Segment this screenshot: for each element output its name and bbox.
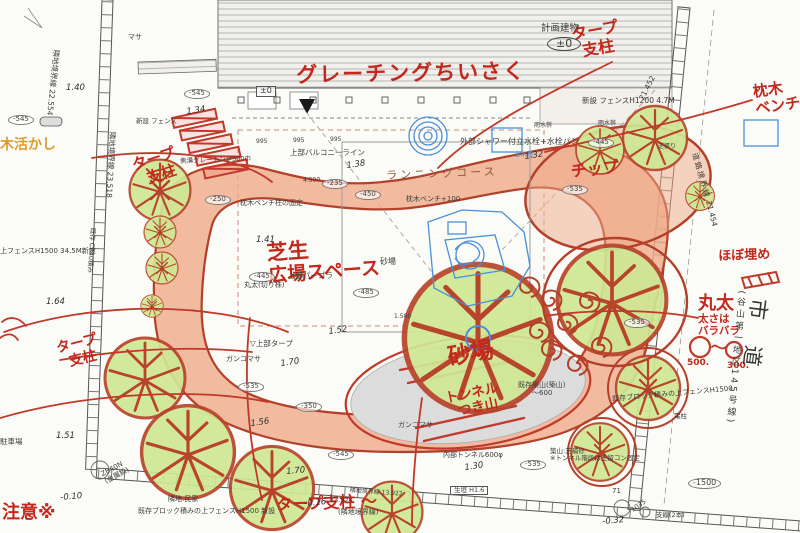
label-masa: マサ xyxy=(128,34,142,42)
pill-minus485: -485 xyxy=(353,288,379,298)
level-minus032: -0.32 xyxy=(602,516,625,527)
dim-995-1: 995 xyxy=(256,139,267,146)
note-caution: 注意※ xyxy=(2,503,56,523)
level-140: 1.40 xyxy=(66,84,85,94)
dim-4500: 4.500 xyxy=(303,177,320,184)
label-rain-basin-2: 雨水桝 xyxy=(598,121,616,128)
pill-minus545a: -545 xyxy=(184,89,210,99)
label-block-fence-bottom: 既存ブロック積みの上フェンスH1500 新設 xyxy=(138,508,275,516)
note-keep-trees: 木活かし xyxy=(0,138,56,154)
label-inner-tunnel: 内部トンネル600φ xyxy=(443,452,503,460)
pill-minus250: -250 xyxy=(205,195,231,205)
site-plan-drawing: グレーチングちいさく タープ支柱 枕木ベンチ タープ支柱 ほぼ埋め 丸太太さはバ… xyxy=(0,0,800,533)
label-upper-fence-h1500: 上フェンスH1500 34.5M新設 xyxy=(0,248,96,256)
level-minus010: -0.10 xyxy=(60,492,83,503)
pill-minus445a: -445 xyxy=(249,272,275,282)
label-rain-basin-1: 雨水桝 xyxy=(534,123,552,130)
pill-minus445b: -445 xyxy=(588,138,614,148)
level-170b: 1.70 xyxy=(286,466,306,477)
label-sandpit-printed: 砂場 xyxy=(380,258,396,267)
pill-minus535c: -535 xyxy=(238,382,264,392)
label-balcony-line: 上部バルコニーライン xyxy=(290,149,365,157)
label-outdoor-shower: 外部シャワー付立水栓+水栓パン xyxy=(460,138,579,147)
pill-minus535b: -535 xyxy=(624,318,650,328)
level-151: 1.51 xyxy=(56,432,75,442)
pill-minus535a: -535 xyxy=(562,185,588,195)
label-neighbor-house: 隣地:民家 xyxy=(168,496,198,504)
dim-995-3: 995 xyxy=(330,137,341,144)
label-utility-pole: 電柱 xyxy=(674,413,687,420)
level-plusminus0-left: ±0 xyxy=(256,86,276,97)
pill-minus545c: -545 xyxy=(328,450,354,460)
dim-995-2: 995 xyxy=(293,138,304,145)
label-new-fence-left: 新設 フェンス xyxy=(136,118,177,125)
label-upper-pergola: 上部パーゴラ xyxy=(288,272,333,280)
label-gankomasa-2: ガンコマサ xyxy=(398,422,433,430)
dim-71: 71 xyxy=(612,488,621,496)
level-141: 1.41 xyxy=(256,236,275,246)
label-13924: 13.924 xyxy=(330,497,353,504)
pill-minus535d: -535 xyxy=(520,460,546,470)
note-mostly-buried: ほぼ埋め xyxy=(718,248,770,264)
dim-1500: 1.500 xyxy=(394,314,411,321)
pill-minus1500: -1500 xyxy=(688,478,721,489)
label-sleeper-bench-post: 枕木ベンチ柱の固定 xyxy=(240,200,303,208)
note-log-dia-500: 500. xyxy=(687,358,709,368)
note-sleeper-bench: 枕木ベンチ xyxy=(752,78,800,118)
pill-minus450: -450 xyxy=(355,190,381,200)
note-grating-smaller: グレーチングちいさく xyxy=(296,60,526,88)
pill-minus545b: -545 xyxy=(8,115,34,125)
label-hedge: 生垣 H1.6 xyxy=(450,486,488,495)
label-guy-wires: 支線(2本) xyxy=(656,512,685,519)
label-turf: 芝張り xyxy=(658,144,676,151)
label-adjacent-boundary-paren: (隣地境界線) xyxy=(338,509,378,517)
level-minus016: -0.16 xyxy=(304,498,327,509)
label-upper-tarp: ▽上部タープ xyxy=(250,340,293,348)
label-parking: 駐車場 xyxy=(0,438,23,446)
label-gankomasa-1: ガンコマサ xyxy=(226,356,261,364)
pill-minus350: -350 xyxy=(296,402,322,412)
label-log-stumps: 丸太(切り株) xyxy=(244,282,284,290)
pill-minus235: -235 xyxy=(322,179,348,189)
label-mound-turf-repair: 築山:芝補修※トンネル階段は土留コン固定 xyxy=(550,448,640,463)
label-new-fence-h1200: 新設 フェンスH1200 4.7M xyxy=(582,97,675,105)
label-sleeper-bench-100: 枕木ベンチ+100 xyxy=(406,196,460,204)
level-164: 1.64 xyxy=(46,298,65,308)
label-existing-mound: 既存築山(築山)〜600 xyxy=(518,382,565,398)
label-planned-building: 計画建物 xyxy=(541,24,579,35)
